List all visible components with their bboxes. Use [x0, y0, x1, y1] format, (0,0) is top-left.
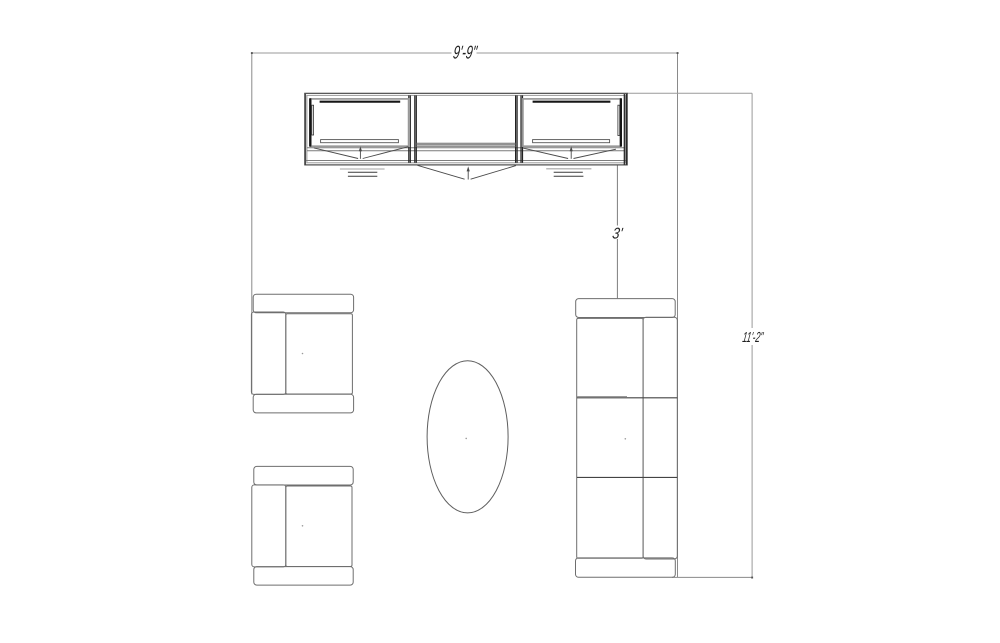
svg-text:11'-2": 11'-2": [741, 330, 764, 346]
svg-text:9'-9": 9'-9": [452, 41, 479, 62]
svg-text:3': 3': [611, 225, 624, 242]
